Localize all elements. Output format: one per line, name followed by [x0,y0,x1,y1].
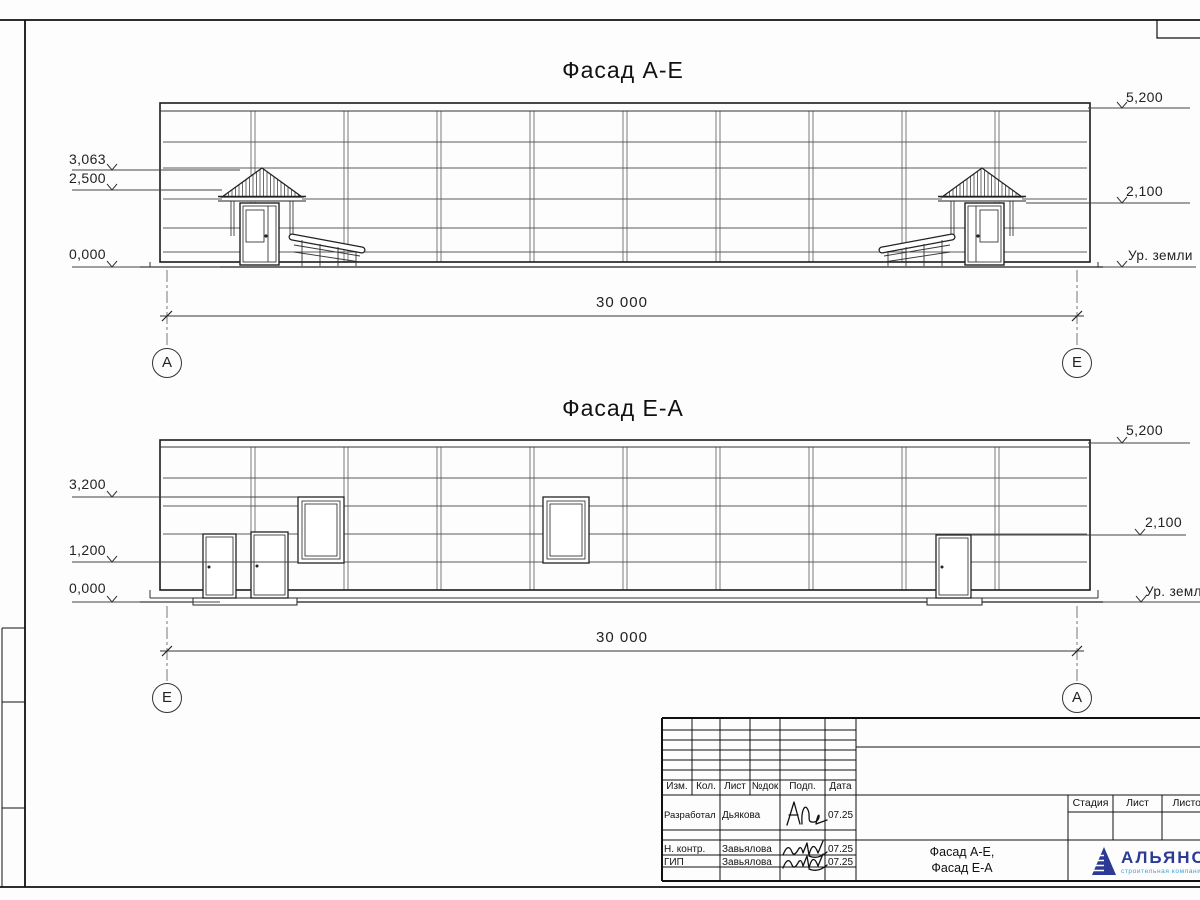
tb-row3-name: Завьялова [722,858,772,869]
tb-row2-name: Завьялова [722,845,772,856]
facade-bottom-ground-label: Ур. земли [1145,585,1200,599]
tb-doc-name-line2: Фасад Е-А [858,862,1066,875]
facade-bottom-windows [298,497,589,563]
facade-bottom-level-0000: 0,000 [28,581,106,596]
facade-bottom-title: Фасад Е-А [473,396,773,420]
facade-bottom-axis-left: Е [155,690,179,706]
tb-col-podp: Подп. [780,782,825,793]
facade-top-level-2500: 2,500 [28,171,106,186]
signature-developer [787,802,827,825]
tb-col-ndok: №док [750,782,780,793]
facade-top-level-0000: 0,000 [28,247,106,262]
facade-bottom-width-dim: 30 000 [500,630,744,646]
company-tagline: строительная компания [1121,869,1200,876]
tb-row2-date: 07.25 [825,845,856,856]
facade-top-ground-label: Ур. земли [1128,249,1193,263]
signature-scribbles [783,802,827,870]
facade-top-right-entrance [938,168,1026,265]
tb-sheets-col: Листов [1162,798,1200,809]
facade-top-level-2100: 2,100 [1126,184,1163,199]
tb-row1-date: 07.25 [825,811,856,822]
tb-doc-name-line1: Фасад А-Е, [858,846,1066,859]
facade-bottom-level-2100: 2,100 [1145,515,1182,530]
tb-sheet-col: Лист [1113,798,1162,809]
tb-row3-date: 07.25 [825,858,856,869]
facade-top-width-dim: 30 000 [500,295,744,311]
tb-col-izm: Изм. [662,782,692,793]
tb-stage-col: Стадия [1068,798,1113,809]
drawing-sheet: Фасад А-Е 3,063 2,500 0,000 5,200 2,100 … [0,0,1200,900]
facade-top-title: Фасад А-Е [473,58,773,82]
tb-col-data: Дата [825,782,856,793]
tb-row2-role: Н. контр. [664,845,705,856]
tb-row3-role: ГИП [664,858,684,869]
company-name: АЛЬЯНС [1121,849,1200,867]
facade-bottom-level-5200: 5,200 [1126,423,1163,438]
facade-bottom-level-1200: 1,200 [28,543,106,558]
facade-top-left-entrance [218,168,306,265]
company-logo-icon [1092,847,1116,875]
facade-bottom-axis-right: А [1065,690,1089,706]
tb-col-kol: Кол. [692,782,720,793]
tb-col-list: Лист [720,782,750,793]
facade-top-level-5200: 5,200 [1126,90,1163,105]
tb-row1-role: Разработал [664,811,716,821]
tb-row1-name: Дьякова [722,811,760,822]
facade-bottom-level-3200: 3,200 [28,477,106,492]
drawing-linework [0,0,1200,900]
facade-top-axis-right: Е [1065,355,1089,371]
facade-top-level-3063: 3,063 [28,152,106,167]
sheet-frame [0,20,1200,887]
facade-top-axis-left: А [155,355,179,371]
